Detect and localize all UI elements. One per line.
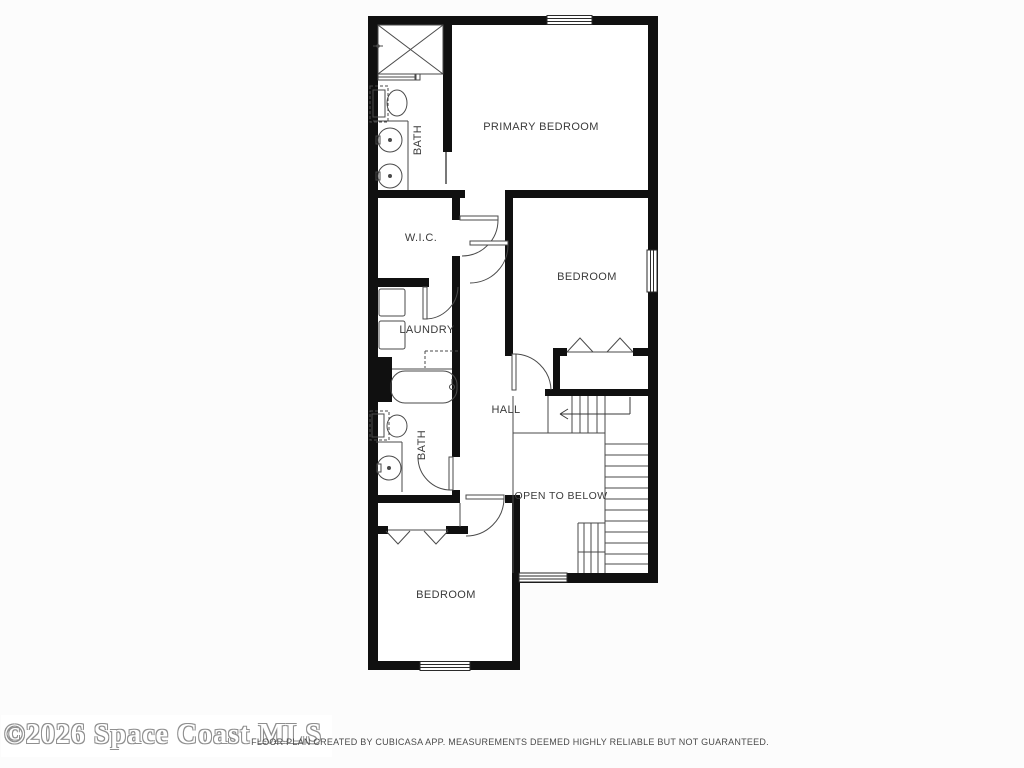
room-label-hall: HALL <box>491 404 520 416</box>
window-stairs-icon <box>519 573 567 582</box>
room-label-wic: W.I.C. <box>405 232 437 244</box>
window-top-icon <box>547 16 592 25</box>
room-label-bath-hall: BATH <box>416 430 428 460</box>
room-label-bedroom-bottom: BEDROOM <box>416 589 476 601</box>
floor-plan-page: PRIMARY BEDROOM BATH W.I.C. LAUNDRY BEDR… <box>0 0 1024 768</box>
window-right-icon <box>647 250 657 292</box>
room-label-laundry: LAUNDRY <box>399 324 454 336</box>
room-label-bedroom-middle: BEDROOM <box>557 271 617 283</box>
mls-watermark: ©2026 Space Coast MLS <box>1 715 332 757</box>
window-bottom-icon <box>420 662 470 671</box>
disclaimer-text: FLOOR PLAN CREATED BY CUBICASA APP. MEAS… <box>251 737 769 747</box>
room-label-open-to-below: OPEN TO BELOW <box>515 490 608 502</box>
floor-plan-svg: PRIMARY BEDROOM BATH W.I.C. LAUNDRY BEDR… <box>0 0 1024 768</box>
room-label-bath-primary: BATH <box>412 125 424 155</box>
room-label-primary-bedroom: PRIMARY BEDROOM <box>483 121 599 133</box>
